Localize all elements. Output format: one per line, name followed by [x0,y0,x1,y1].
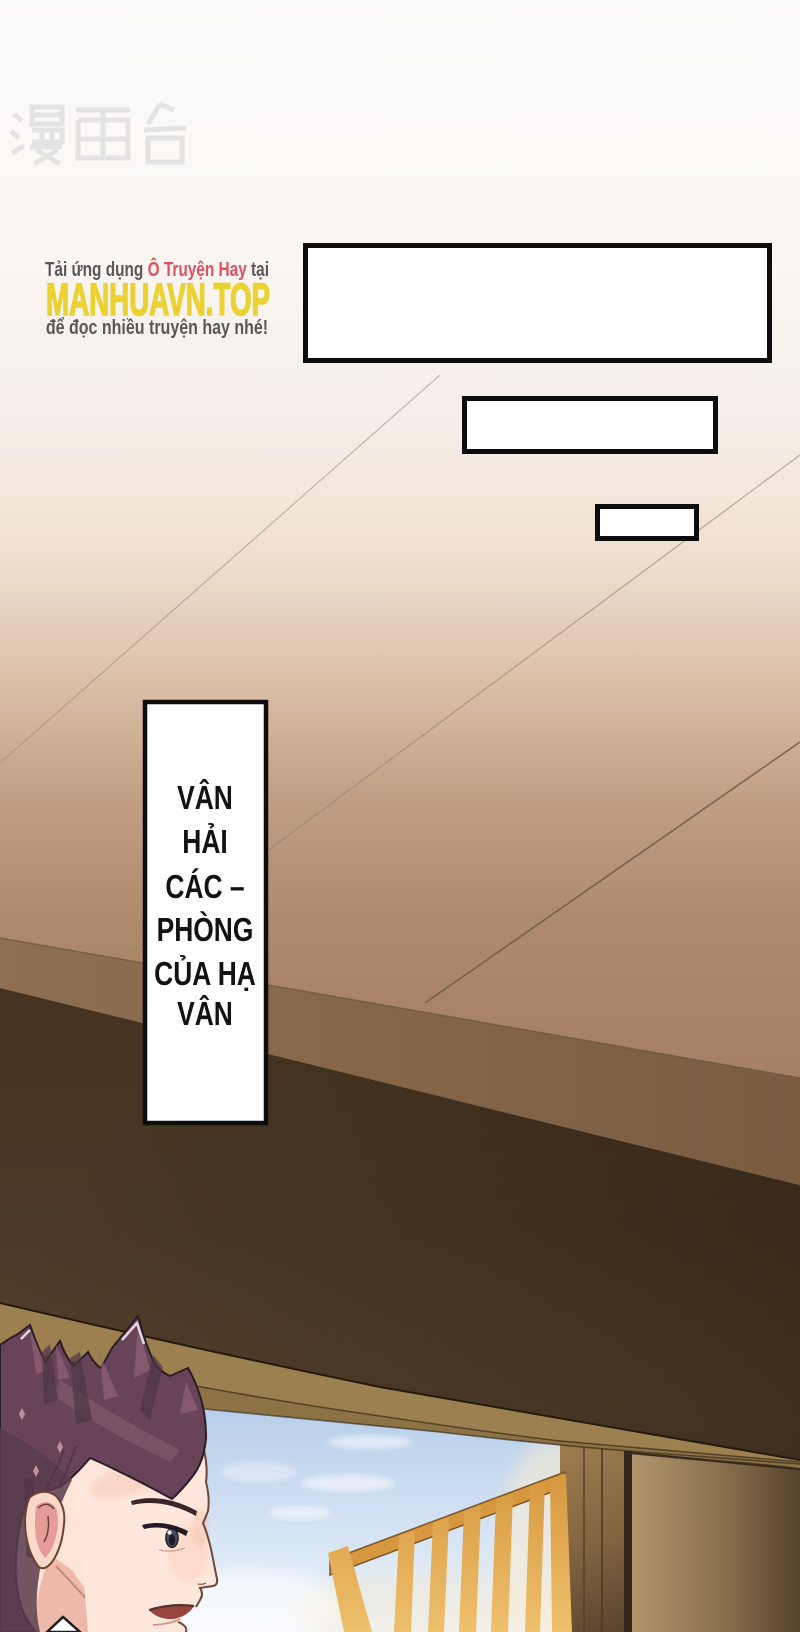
svg-text:để đọc nhiều truyện hay nhé!: để đọc nhiều truyện hay nhé! [46,316,268,338]
svg-text:VÂN: VÂN [177,779,233,817]
svg-text:PHÒNG: PHÒNG [157,911,254,949]
svg-text:CÁC –: CÁC – [165,868,244,906]
svg-text:CỦA HẠ: CỦA HẠ [154,955,256,993]
svg-text:HẢI: HẢI [182,823,227,861]
svg-text:VÂN: VÂN [177,995,233,1033]
